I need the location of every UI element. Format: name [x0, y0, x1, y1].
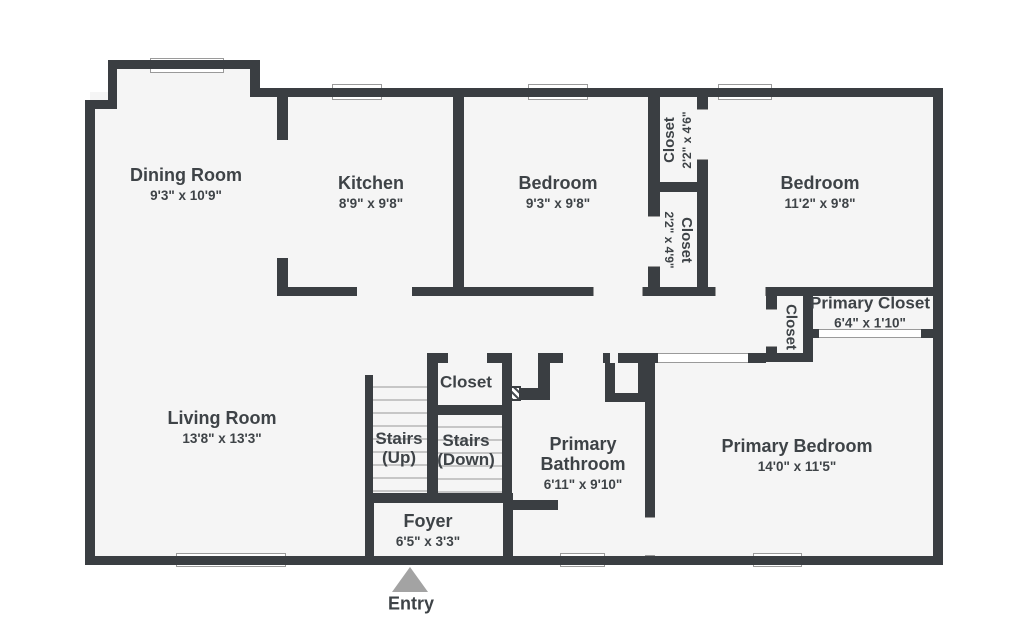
wall-segment	[427, 405, 512, 415]
room-name: Closet	[782, 292, 799, 362]
room-dims: 6'11" x 9'10"	[529, 477, 637, 492]
room-name: Living Room	[137, 408, 307, 428]
room-name: Stairs (Down)	[434, 431, 498, 469]
room-label-primary-closet: Primary Closet 6'4" x 1'10"	[790, 293, 950, 330]
room-name: Dining Room	[106, 165, 266, 185]
floor-plan: Dining Room 9'3" x 10'9" Kitchen 8'9" x …	[0, 0, 1024, 622]
wall-segment	[520, 388, 550, 400]
room-name: Closet	[662, 94, 679, 186]
room-label-closet-small: Closet	[782, 292, 799, 362]
wall-segment	[643, 287, 715, 296]
room-label-hall-closet: Closet	[426, 372, 506, 391]
entry-arrow-icon	[392, 567, 428, 592]
wall-segment	[453, 92, 464, 296]
wall-segment	[85, 100, 95, 565]
room-label-primary-bathroom: Primary Bathroom 6'11" x 9'10"	[529, 434, 637, 492]
room-label-closet-upper: Closet 2'2" x 4'6"	[662, 94, 694, 186]
room-dims: 14'0" x 11'5"	[682, 459, 912, 474]
wall-segment	[365, 493, 512, 503]
room-label-living-room: Living Room 13'8" x 13'3"	[137, 408, 307, 446]
room-dims: 2'2" x 4'6"	[681, 94, 694, 186]
wall-segment	[85, 556, 943, 565]
wall-segment	[648, 97, 660, 185]
room-dims: 9'3" x 9'8"	[488, 196, 628, 211]
wall-segment	[250, 88, 943, 97]
room-dims: 6'5" x 3'3"	[368, 534, 488, 549]
wide-opening	[658, 353, 748, 363]
entry-label: Entry	[388, 594, 434, 615]
wall-segment	[748, 353, 766, 363]
room-dims: 2'2" x 4'9"	[662, 194, 675, 286]
room-label-stairs-up: Stairs (Up)	[370, 429, 428, 467]
door-opening	[715, 287, 766, 296]
door-opening	[593, 287, 643, 296]
wall-segment	[277, 287, 357, 296]
room-name: Primary Bathroom	[529, 434, 637, 474]
room-label-dining-room: Dining Room 9'3" x 10'9"	[106, 165, 266, 203]
wall-segment	[766, 347, 777, 362]
wall-segment	[550, 353, 563, 363]
wall-segment	[277, 92, 288, 140]
wall-segment	[697, 97, 708, 109]
room-label-bedroom-left: Bedroom 9'3" x 9'8"	[488, 173, 628, 211]
room-name: Primary Closet	[790, 293, 950, 312]
room-name: Kitchen	[306, 173, 436, 193]
door-opening	[645, 517, 655, 556]
wall-segment	[412, 287, 593, 296]
room-label-stairs-down: Stairs (Down)	[434, 431, 498, 469]
room-label-foyer: Foyer 6'5" x 3'3"	[368, 511, 488, 549]
wall-segment	[648, 192, 660, 216]
room-name: Stairs (Up)	[370, 429, 428, 467]
room-name: Bedroom	[740, 173, 900, 193]
room-dims: 6'4" x 1'10"	[790, 315, 950, 330]
door-opening	[697, 109, 708, 160]
room-dims: 13'8" x 13'3"	[137, 431, 307, 446]
wall-segment	[108, 60, 258, 69]
room-label-closet-lower: Closet 2'2" x 4'9"	[662, 194, 694, 286]
wall-segment	[603, 353, 610, 363]
door-opening	[648, 216, 660, 267]
room-name: Bedroom	[488, 173, 628, 193]
room-name: Closet	[677, 194, 694, 286]
wall-segment	[618, 353, 658, 363]
wall-segment	[487, 353, 512, 363]
room-name: Foyer	[368, 511, 488, 531]
room-dims: 9'3" x 10'9"	[106, 188, 266, 203]
wall-segment	[605, 363, 615, 402]
wall-segment	[513, 500, 558, 510]
room-name: Primary Bedroom	[682, 436, 912, 456]
room-label-primary-bedroom: Primary Bedroom 14'0" x 11'5"	[682, 436, 912, 474]
wall-segment	[697, 192, 708, 287]
wall-segment	[428, 353, 448, 363]
room-dims: 8'9" x 9'8"	[306, 196, 436, 211]
wall-segment	[277, 258, 288, 296]
door-opening	[766, 309, 777, 347]
room-label-bedroom-right: Bedroom 11'2" x 9'8"	[740, 173, 900, 211]
room-label-kitchen: Kitchen 8'9" x 9'8"	[306, 173, 436, 211]
room-name: Closet	[426, 372, 506, 391]
room-dims: 11'2" x 9'8"	[740, 196, 900, 211]
